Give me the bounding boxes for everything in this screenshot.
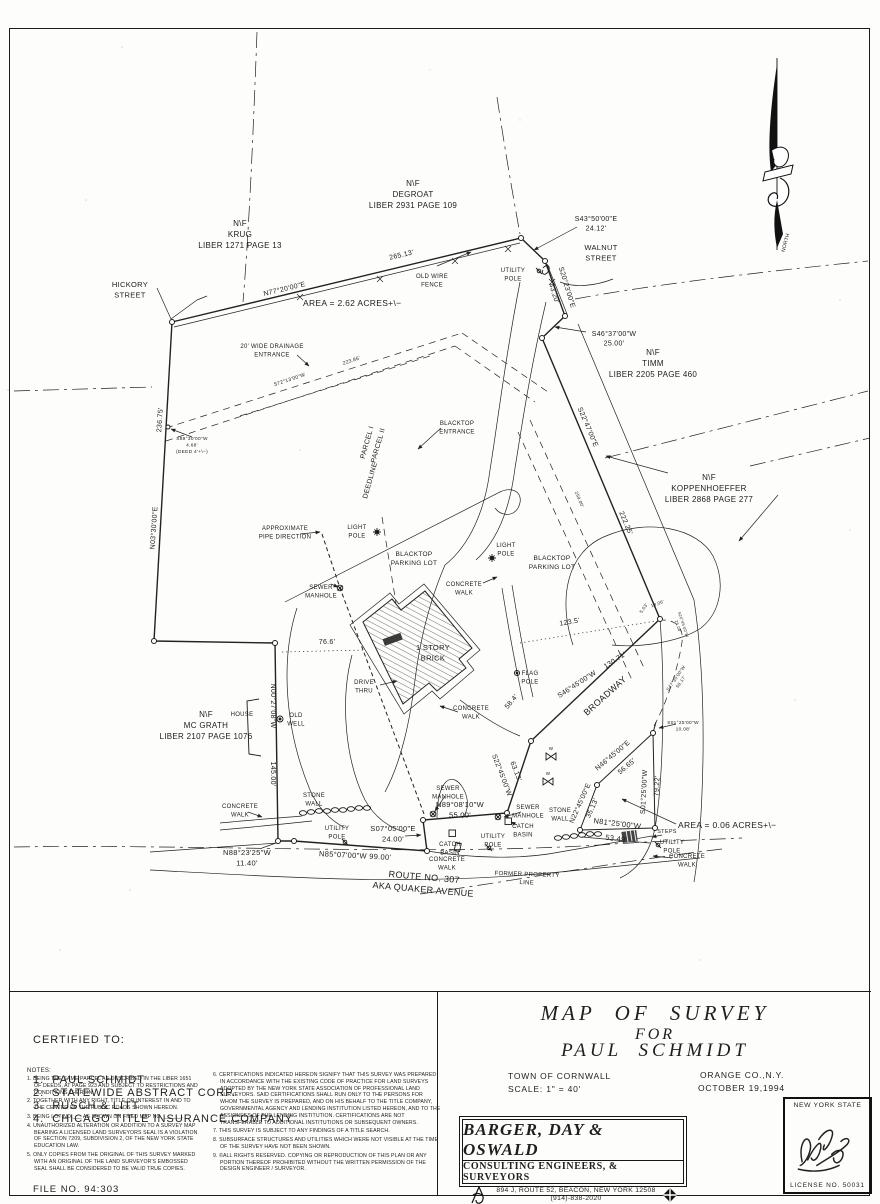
note-item: 8. SUBSURFACE STRUCTURES AND UTILITIES W… (213, 1137, 441, 1151)
firm-logo-icon (469, 1184, 489, 1204)
license-number: LICENSE NO. 50031 (790, 1182, 865, 1189)
note-item: 1. BEING THE SAME PARCEL AS DESCRIBED IN… (27, 1076, 199, 1096)
note-item: 7. THIS SURVEY IS SUBJECT TO ANY FINDING… (213, 1128, 441, 1135)
map-title-line1: MAP OF SURVEY (480, 1001, 830, 1026)
surveyor-signature (791, 1117, 865, 1175)
note-item: 5. ONLY COPIES FROM THE ORIGINAL OF THIS… (27, 1152, 199, 1172)
town-label: TOWN OF CORNWALL (508, 1071, 611, 1081)
firm-tagline: CONSULTING ENGINEERS, & SURVEYORS (463, 1161, 683, 1184)
scale-label: SCALE: 1" = 40' (508, 1084, 581, 1094)
notes-column-1: 1. BEING THE SAME PARCEL AS DESCRIBED IN… (27, 1076, 199, 1174)
notes-heading: NOTES: (27, 1068, 51, 1074)
date-label: OCTOBER 19,1994 (698, 1083, 785, 1093)
certified-heading: CERTIFIED TO: (33, 1034, 293, 1047)
survey-sheet: N\FDEGROATLIBER 2931 PAGE 109N\FKRUGLIBE… (0, 0, 880, 1204)
note-item: 6. CERTIFICATIONS INDICATED HEREON SIGNI… (213, 1072, 441, 1126)
firm-address: 894 J, ROUTE 52, BEACON, NEW YORK 12508 (496, 1187, 655, 1196)
firm-name: BARGER, DAY & OSWALD (463, 1120, 683, 1161)
notes-column-2: 6. CERTIFICATIONS INDICATED HEREON SIGNI… (213, 1072, 441, 1175)
note-item: 9. ©ALL RIGHTS RESERVED. COPYING OR REPR… (213, 1153, 441, 1173)
note-item: 2. TOGETHER WITH ANY RIGHT, TITLE OR INT… (27, 1098, 199, 1112)
license-box: NEW YORK STATE LICENSE NO. 50031 (783, 1097, 872, 1194)
map-title-line3: PAUL SCHMIDT (480, 1040, 830, 1062)
note-item: 3. BEING LOT NO.___ AS SHOWN ON FILED MA… (27, 1114, 199, 1121)
compass-diamond-icon (663, 1188, 677, 1202)
map-bottom-divider (9, 991, 871, 992)
license-state: NEW YORK STATE (793, 1102, 861, 1109)
note-item: 4. UNAUTHORIZED ALTERATION OR ADDITION T… (27, 1123, 199, 1150)
firm-phone: (914)-838-2020 (496, 1195, 655, 1204)
county-label: ORANGE CO.,N.Y. (700, 1070, 784, 1080)
firm-title-box: BARGER, DAY & OSWALD CONSULTING ENGINEER… (459, 1116, 687, 1187)
file-number: FILE NO. 94:303 (33, 1184, 119, 1195)
